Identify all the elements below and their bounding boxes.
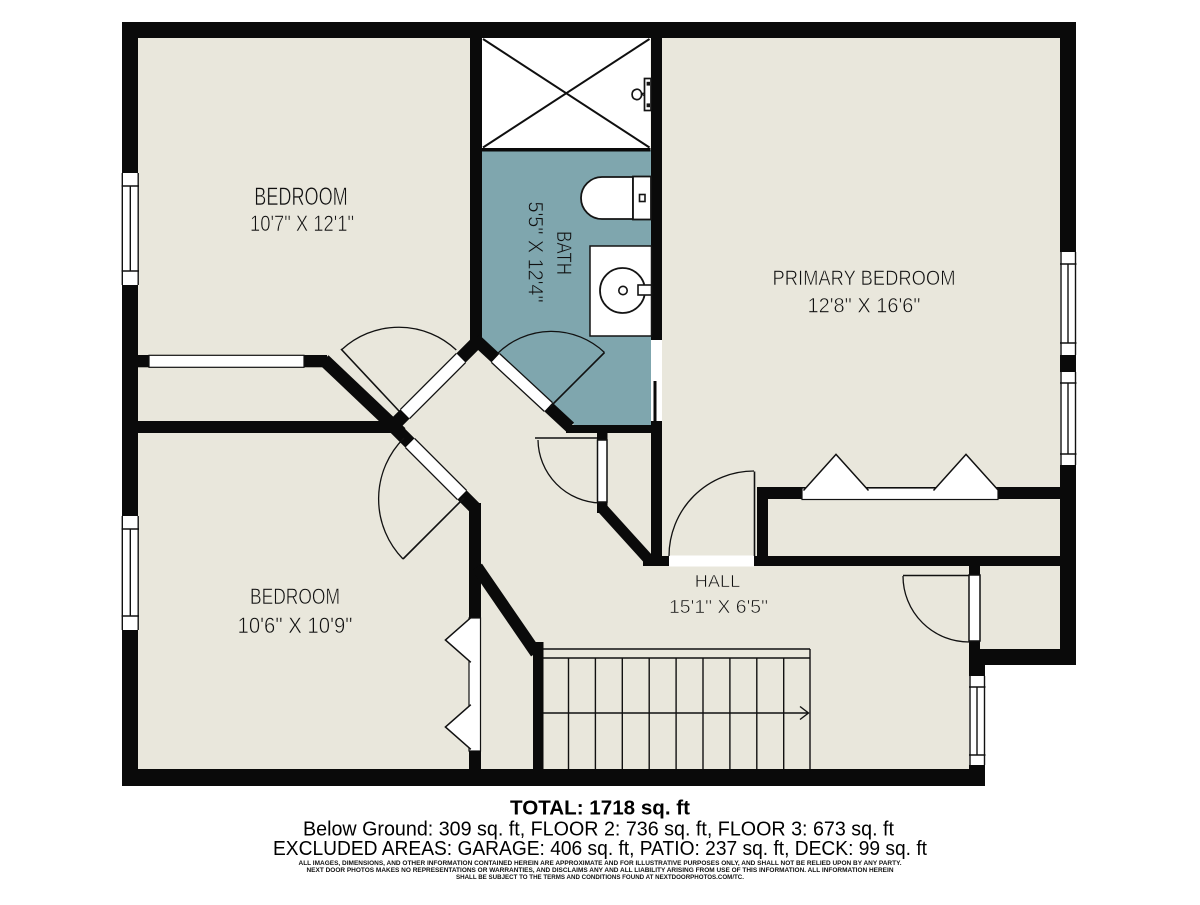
svg-text:TOTAL: 1718 sq. ft: TOTAL: 1718 sq. ft <box>510 798 690 820</box>
svg-text:PRIMARY BEDROOM: PRIMARY BEDROOM <box>773 267 956 290</box>
svg-text:SHALL BE SUBJECT TO THE TERMS: SHALL BE SUBJECT TO THE TERMS AND CONDIT… <box>456 874 744 881</box>
svg-text:BEDROOM: BEDROOM <box>250 584 340 609</box>
svg-text:10'6" X 10'9": 10'6" X 10'9" <box>238 613 353 638</box>
svg-text:EXCLUDED AREAS: GARAGE: 406 sq: EXCLUDED AREAS: GARAGE: 406 sq. ft, PATI… <box>273 838 927 860</box>
svg-text:BATH: BATH <box>552 231 576 275</box>
svg-text:NEXT DOOR PHOTOS MAKES NO REPR: NEXT DOOR PHOTOS MAKES NO REPRESENTATION… <box>307 867 894 874</box>
svg-text:10'7" X 12'1": 10'7" X 12'1" <box>250 211 354 236</box>
svg-text:15'1" X 6'5": 15'1" X 6'5" <box>669 596 768 617</box>
svg-text:BEDROOM: BEDROOM <box>254 183 348 211</box>
svg-text:5'5" X 12'4": 5'5" X 12'4" <box>524 202 548 303</box>
svg-text:ALL IMAGES, DIMENSIONS, AND OT: ALL IMAGES, DIMENSIONS, AND OTHER INFORM… <box>299 860 902 867</box>
svg-text:HALL: HALL <box>695 571 741 591</box>
svg-text:12'8" X 16'6": 12'8" X 16'6" <box>808 294 921 318</box>
